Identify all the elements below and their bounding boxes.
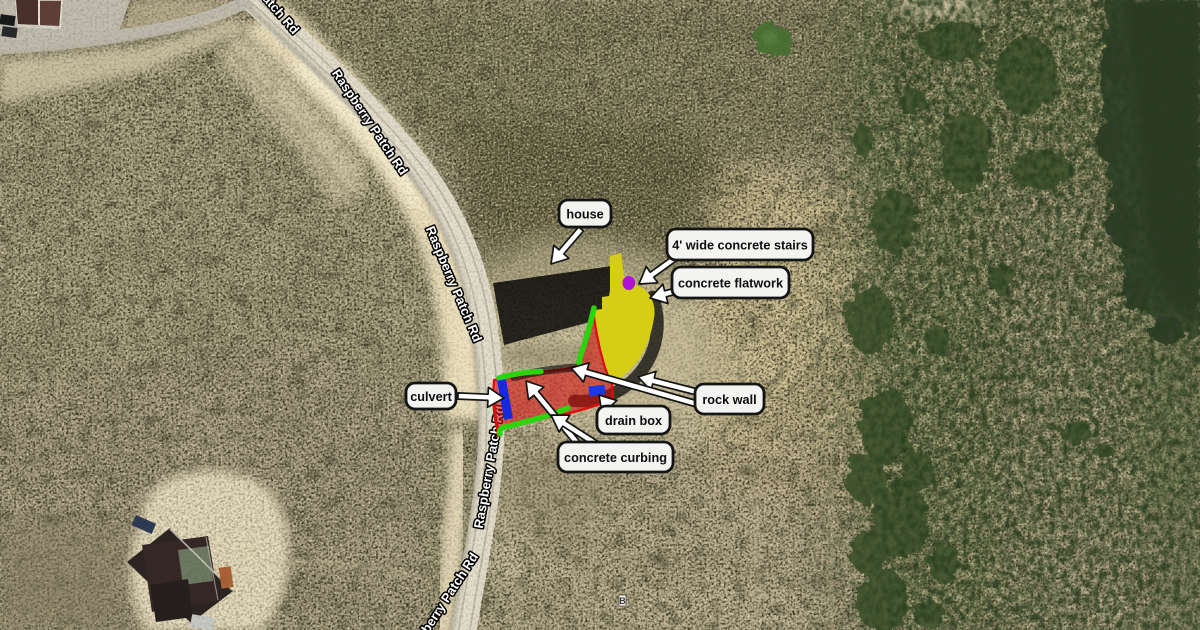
svg-text:rock wall: rock wall <box>702 393 756 407</box>
svg-text:concrete curbing: concrete curbing <box>564 451 667 465</box>
svg-text:concrete flatwork: concrete flatwork <box>678 276 784 290</box>
svg-text:house: house <box>566 207 603 221</box>
svg-text:culvert: culvert <box>410 390 452 404</box>
svg-text:B: B <box>619 596 626 606</box>
svg-text:drain box: drain box <box>605 414 662 428</box>
svg-text:4' wide concrete stairs: 4' wide concrete stairs <box>672 238 808 252</box>
